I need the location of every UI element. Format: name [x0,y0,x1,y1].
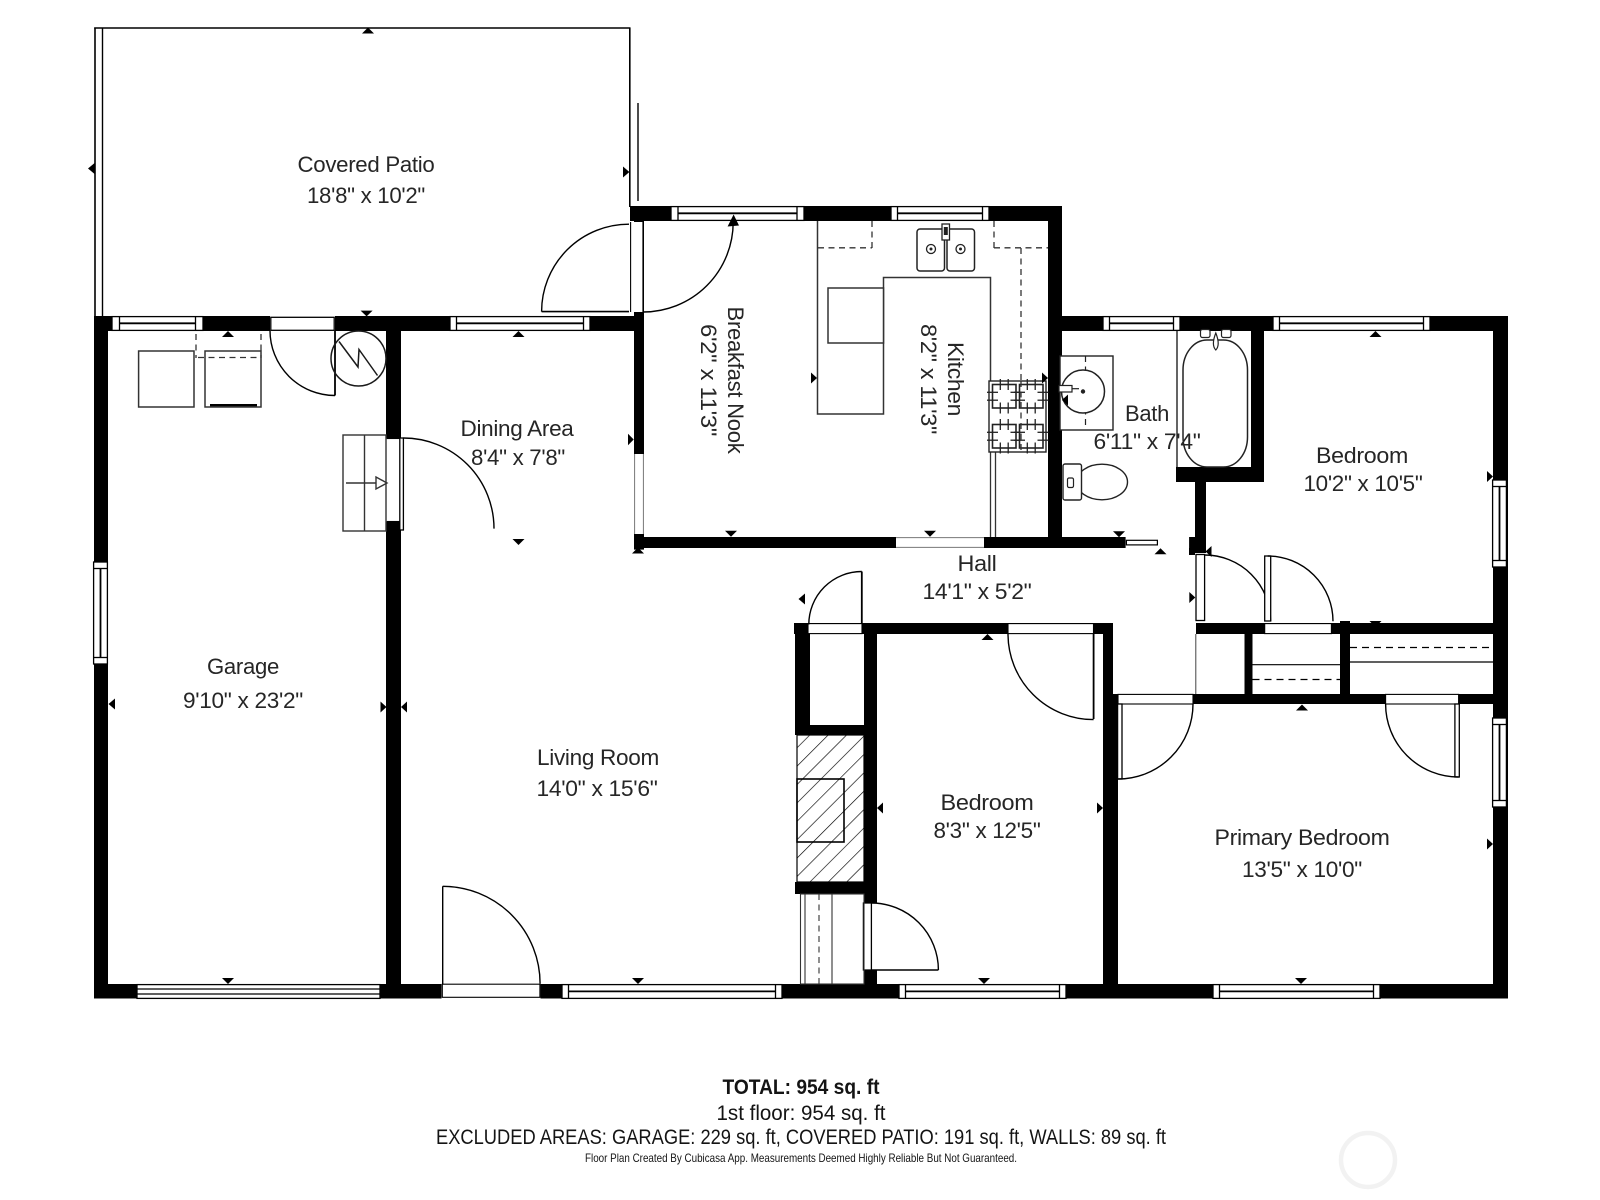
svg-text:14'0" x 15'6": 14'0" x 15'6" [537,776,658,801]
svg-text:Hall: Hall [958,551,997,576]
svg-text:18'8" x 10'2": 18'8" x 10'2" [307,183,425,208]
svg-text:Bedroom: Bedroom [1316,443,1408,468]
svg-text:Garage: Garage [207,654,279,679]
svg-text:Floor Plan Created By Cubicasa: Floor Plan Created By Cubicasa App. Meas… [585,1151,1017,1165]
svg-text:Covered Patio: Covered Patio [298,152,435,177]
svg-text:TOTAL: 954 sq. ft: TOTAL: 954 sq. ft [723,1076,880,1099]
svg-text:6'2" x 11'3": 6'2" x 11'3" [696,324,721,436]
svg-text:8'2" x 11'3": 8'2" x 11'3" [916,324,941,434]
svg-text:1st floor: 954 sq. ft: 1st floor: 954 sq. ft [717,1102,886,1125]
svg-text:Kitchen: Kitchen [943,342,968,416]
svg-text:8'4" x 7'8": 8'4" x 7'8" [471,445,565,470]
svg-text:10'2" x 10'5": 10'2" x 10'5" [1304,471,1423,496]
svg-text:Living Room: Living Room [537,745,659,770]
svg-text:EXCLUDED AREAS: GARAGE: 229 sq: EXCLUDED AREAS: GARAGE: 229 sq. ft, COVE… [436,1126,1166,1149]
svg-text:Bath: Bath [1125,401,1169,426]
svg-text:Bedroom: Bedroom [941,790,1034,815]
svg-text:13'5" x 10'0": 13'5" x 10'0" [1242,857,1362,882]
svg-text:Dining Area: Dining Area [461,416,575,441]
svg-text:Breakfast Nook: Breakfast Nook [723,307,748,455]
svg-text:6'11" x 7'4": 6'11" x 7'4" [1094,429,1201,454]
svg-text:9'10" x 23'2": 9'10" x 23'2" [183,688,303,713]
svg-text:8'3" x 12'5": 8'3" x 12'5" [934,818,1041,843]
svg-text:14'1" x 5'2": 14'1" x 5'2" [923,579,1032,604]
svg-text:Primary Bedroom: Primary Bedroom [1215,825,1390,850]
